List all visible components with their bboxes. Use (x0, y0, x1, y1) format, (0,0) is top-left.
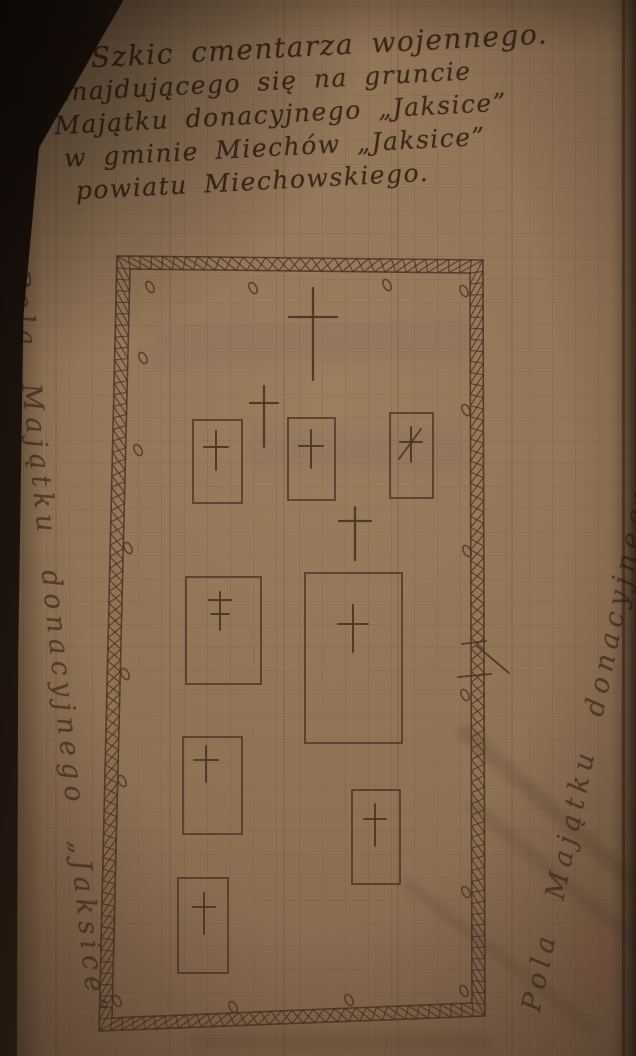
border-x-ornament (106, 719, 119, 728)
border-x-ornament (103, 857, 116, 861)
border-x-ornament (110, 557, 123, 571)
grave-plot (183, 737, 242, 834)
o-mark (132, 443, 144, 457)
border-x-ornament (100, 1007, 113, 1008)
border-x-ornament (247, 258, 254, 271)
border-x-ornament (104, 800, 117, 806)
border-x-ornament (111, 534, 124, 549)
o-mark (144, 280, 156, 294)
border-x-ornament (470, 271, 483, 273)
o-marks (111, 278, 473, 1014)
border-x-ornament (173, 257, 175, 270)
border-x-ornament (470, 339, 483, 340)
border-x-ornament (178, 1014, 196, 1027)
border-x-ornament (470, 439, 483, 443)
grave-plot (305, 573, 402, 743)
border-x-ornament (471, 483, 484, 489)
border-x-ornament (104, 834, 117, 839)
border-x-ornament (332, 259, 346, 272)
plan-border (99, 256, 485, 1031)
photographed-document: Szkic cmentarza wojennego. znajdującego … (0, 0, 636, 1056)
border-x-ornament (326, 1009, 334, 1022)
border-x-ornament (100, 996, 113, 997)
border-x-ornament (109, 603, 122, 616)
border-x-ornament (114, 395, 127, 415)
border-x-ornament (104, 823, 117, 828)
border-x-ornament (471, 550, 484, 558)
border-x-ornament (190, 1014, 207, 1027)
border-x-ornament (461, 1003, 462, 1016)
border-x-ornament (103, 846, 116, 850)
border-x-ornament (113, 418, 126, 437)
border-x-ornament (371, 1007, 376, 1020)
border-x-ornament (128, 256, 130, 269)
border-x-ornament (103, 869, 116, 873)
border-x-ornament (109, 580, 122, 593)
border-outer-line (99, 256, 485, 1031)
border-x-ornament (215, 257, 220, 270)
border-x-ornament (101, 938, 114, 939)
border-x-ornament (110, 545, 123, 559)
border-x-ornament (360, 1007, 366, 1020)
border-inner-line (112, 269, 472, 1018)
grave-plot (186, 577, 261, 684)
o-mark (247, 281, 259, 295)
border-x-ornament (396, 259, 415, 272)
gate-mark (462, 641, 486, 644)
border-x-ornament (101, 962, 114, 963)
border-x-ornament (105, 753, 118, 760)
border-x-ornament (167, 1015, 186, 1028)
cemetery-plan-sketch (0, 0, 636, 1056)
border-x-ornament (472, 1003, 474, 1016)
border-x-ornament (162, 257, 163, 270)
border-x-ornament (440, 1004, 441, 1017)
border-x-ornament (470, 294, 483, 295)
border-x-ornament (471, 715, 484, 729)
border-x-ornament (471, 572, 484, 581)
border-x-ornament (106, 730, 119, 738)
border-x-ornament (471, 472, 484, 478)
border-x-ornament (114, 406, 127, 425)
o-mark (460, 885, 472, 899)
border-x-ornament (109, 591, 122, 604)
grave-plot (193, 420, 242, 503)
border-x-ornament (104, 811, 117, 817)
page-edge-right (624, 0, 636, 1056)
border-x-ornament (470, 428, 483, 432)
border-x-ornament (471, 704, 484, 718)
border-x-ornament (471, 693, 484, 706)
border-x-ornament (471, 561, 484, 570)
o-mark (381, 278, 393, 292)
border-x-ornament (107, 707, 120, 716)
border-x-ornament (383, 1007, 387, 1020)
border-x-ornament (105, 765, 118, 772)
o-mark (137, 351, 149, 365)
o-mark (459, 688, 471, 702)
o-mark (227, 1000, 239, 1014)
border-x-ornament (105, 777, 118, 784)
grave-plots (178, 413, 433, 973)
o-mark (343, 993, 355, 1007)
border-x-ornament (114, 372, 127, 392)
border-x-ornament (268, 258, 277, 271)
border-x-ornament (472, 826, 485, 844)
border-x-ornament (471, 583, 484, 592)
border-x-ornament (472, 859, 485, 878)
o-mark (458, 984, 470, 998)
border-x-ornament (226, 257, 232, 270)
border-x-ornament (99, 1018, 112, 1019)
border-x-ornament (472, 870, 485, 890)
border-x-ornament (101, 927, 114, 929)
border-x-ornament (114, 383, 127, 403)
border-x-ornament (470, 283, 483, 284)
border-x-ornament (471, 815, 484, 833)
border-x-ornament (471, 527, 484, 535)
border-x-ornament (428, 1005, 429, 1018)
border-x-ornament (101, 950, 114, 951)
border-x-ornament (337, 1008, 345, 1021)
border-x-ornament (470, 350, 483, 351)
border-x-ornament (258, 258, 266, 271)
border-x-ornament (472, 837, 485, 856)
border-x-ornament (140, 256, 141, 269)
border-x-ornament (106, 742, 119, 750)
border-x-ornament (471, 461, 484, 466)
border-x-ornament (471, 538, 484, 546)
border-x-ornament (471, 505, 484, 512)
border-x-ornament (315, 1009, 324, 1022)
border-x-ornament (470, 450, 483, 455)
border-x-ornament (471, 516, 484, 523)
o-mark (458, 284, 470, 298)
border-x-ornament (385, 259, 403, 272)
border-x-ornament (201, 1014, 218, 1027)
border-x-ornament (471, 494, 484, 500)
border-x-ornament (105, 788, 118, 794)
border-x-ornament (321, 258, 334, 271)
memorial-crosses (250, 288, 371, 560)
border-x-ornament (204, 257, 208, 270)
border-x-ornament (236, 257, 243, 270)
border-x-ornament (470, 361, 483, 363)
border-x-ornament (471, 682, 484, 695)
border-x-ornament (472, 848, 485, 867)
border-x-ornament (107, 696, 120, 705)
border-x-ornament (110, 568, 123, 582)
border-x-ornament (472, 881, 485, 901)
border-x-ornament (349, 1008, 356, 1021)
